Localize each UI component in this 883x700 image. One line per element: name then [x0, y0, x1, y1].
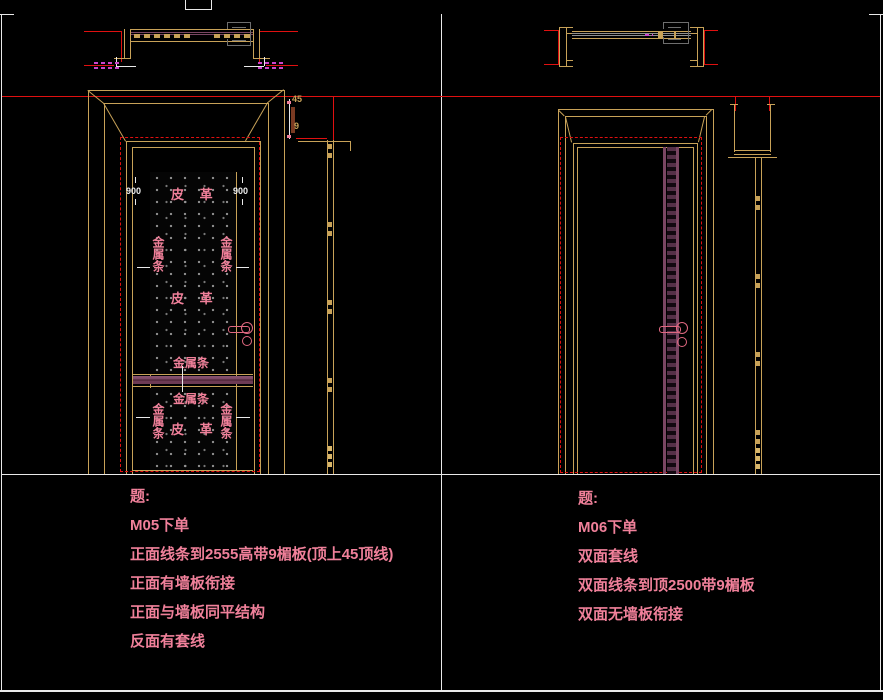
metal-strip-label: 金属条: [219, 403, 233, 439]
floor-line: [2, 474, 880, 475]
section-hatch: [328, 446, 332, 451]
cad-line: [350, 141, 351, 151]
lock-detail: [227, 45, 250, 46]
lock-detail: [250, 22, 251, 46]
jamb-line: [690, 60, 697, 61]
metal-strip-label: 金属条: [173, 354, 209, 371]
leather-label: 皮 革: [171, 419, 219, 438]
metal-strip-label: 金属条: [173, 390, 209, 407]
cad-line: [761, 157, 762, 474]
lock-detail: [663, 22, 664, 29]
border-top-tick-right: [869, 14, 883, 15]
section-symbol: [211, 0, 212, 9]
cad-line: [333, 140, 334, 474]
lock-detail: [663, 22, 688, 23]
wall-line: [333, 96, 334, 140]
leader-line: [182, 366, 183, 392]
leather-label: 皮 革: [171, 288, 219, 307]
cad-line: [730, 104, 738, 105]
cad-line: [734, 104, 735, 152]
note-line: 反面有套线: [130, 627, 393, 656]
cad-line: [767, 104, 775, 105]
section-hatch: [328, 144, 332, 444]
lock-detail: [688, 22, 689, 44]
leader-line: [136, 417, 150, 418]
trim-line: [289, 99, 290, 139]
section-symbol: [185, 0, 186, 9]
cad-line: [734, 150, 771, 151]
section-hatch: [756, 448, 760, 453]
mitre-line: [245, 102, 268, 141]
frame-line: [706, 116, 707, 474]
mitre-line: [87, 90, 104, 104]
mitre-line: [103, 103, 126, 142]
section-hatch: [328, 462, 332, 467]
hatch-magenta: [258, 62, 286, 64]
jamb-line: [703, 27, 704, 67]
lock-detail: [232, 27, 246, 28]
wall-line: [259, 31, 298, 32]
section-hatch: [328, 454, 332, 459]
mitre-line: [706, 109, 712, 115]
note-line: 正面线条到2555高带9楣板(顶上45顶线): [130, 540, 393, 569]
jamb-line: [690, 33, 697, 34]
cad-line: [130, 29, 253, 30]
dimension-900: 900: [126, 186, 141, 196]
border-top-tick-left: [0, 14, 14, 15]
wall-line: [704, 30, 705, 64]
left-notes-block[interactable]: 题: M05下单 正面线条到2555高带9楣板(顶上45顶线) 正面有墙板衔接 …: [130, 482, 393, 656]
lock-detail: [227, 22, 228, 29]
wall-line: [296, 138, 327, 139]
cad-line: [728, 157, 777, 158]
leather-label: 皮 革: [171, 184, 219, 203]
lock-detail: [663, 43, 688, 44]
right-notes-block[interactable]: 题: M06下单 双面套线 双面线条到顶2500带9楣板 双面无墙板衔接: [578, 484, 755, 629]
jamb-line: [559, 27, 560, 67]
frame-line: [104, 103, 268, 104]
leaf-line: [133, 470, 253, 471]
door-handle-rose: [676, 322, 688, 334]
section-hatch: [756, 464, 760, 469]
frame-line: [104, 103, 105, 474]
lock-detail: [227, 39, 228, 46]
dimension-tick: [242, 199, 243, 205]
border-left: [1, 14, 2, 691]
metal-strip-label: 金属条: [219, 236, 233, 272]
lock-detail: [668, 27, 681, 28]
section-symbol: [185, 9, 212, 10]
metal-rail-band: [133, 376, 253, 384]
cad-line: [734, 154, 771, 155]
dimension-900: 900: [233, 186, 248, 196]
note-line: M05下单: [130, 511, 393, 540]
jamb-line: [130, 29, 131, 58]
door-edge-strip-hatch: [667, 147, 676, 474]
wall-line: [544, 30, 559, 31]
casing-dashed-outline: [560, 137, 702, 473]
dimension-45: 45: [292, 94, 302, 104]
wall-line: [84, 65, 114, 66]
lock-detail: [232, 40, 246, 41]
leaf-line: [133, 374, 253, 375]
leader-line: [236, 267, 249, 268]
wall-line: [84, 31, 122, 32]
frame-line: [558, 109, 559, 474]
dimension-tick: [135, 177, 136, 183]
cad-line: [770, 104, 771, 152]
frame-line: [565, 116, 706, 117]
dimension-tick: [242, 177, 243, 183]
mitre-line: [558, 110, 564, 116]
cad-drawing-canvas: 皮 革 皮 革 皮 革 金属条 金属条 金属条 金属条 金属条 金属条 900 …: [0, 0, 883, 700]
wall-line: [703, 30, 718, 31]
cad-line: [130, 41, 253, 42]
note-line: 双面线条到顶2500带9楣板: [578, 571, 755, 600]
frame-line: [268, 103, 269, 474]
jamb-line: [566, 60, 573, 61]
metal-strip-label: 金属条: [151, 403, 165, 439]
cad-line: [298, 141, 350, 142]
note-line: 题:: [578, 484, 755, 513]
jamb-line: [253, 58, 270, 59]
section-hatch: [756, 196, 760, 444]
jamb-line: [690, 27, 704, 28]
frame-line: [88, 90, 285, 91]
lock-detail: [674, 31, 676, 38]
door-handle-rose: [241, 322, 253, 334]
metal-strip-label: 金属条: [151, 236, 165, 272]
hatch-magenta: [94, 67, 122, 69]
dimension-9: 9: [294, 121, 299, 131]
frame-line: [260, 141, 261, 474]
lock-detail: [668, 39, 681, 40]
jamb-line: [124, 29, 125, 58]
frame-line: [88, 90, 89, 474]
wood-hatch: [214, 34, 252, 38]
jamb-line: [253, 29, 254, 58]
ceiling-line: [2, 96, 880, 97]
wood-hatch: [134, 34, 192, 38]
tick: [287, 101, 291, 104]
cad-line: [130, 32, 253, 33]
tick: [287, 135, 291, 138]
lock-detail: [663, 37, 664, 44]
leader-line: [137, 267, 150, 268]
wall-line: [544, 64, 559, 65]
door-keyhole: [677, 337, 687, 347]
jamb-line: [559, 66, 573, 67]
note-line: 正面与墙板同平结构: [130, 598, 393, 627]
door-edge-strip: [663, 147, 666, 474]
section-hatch: [756, 456, 760, 461]
lock-detail: [227, 22, 250, 23]
sheet-divider: [441, 14, 442, 691]
jamb-line: [259, 29, 260, 58]
hatch-magenta: [94, 62, 122, 64]
jamb-line: [697, 27, 698, 67]
leader-line: [236, 417, 250, 418]
wall-line: [266, 65, 298, 66]
note-line: 正面有墙板衔接: [130, 569, 393, 598]
note-line: M06下单: [578, 513, 755, 542]
frame-line: [558, 109, 713, 110]
dimension-tick: [135, 199, 136, 205]
border-right: [880, 14, 881, 691]
frame-line: [713, 109, 714, 474]
hatch-magenta: [258, 67, 286, 69]
door-keyhole: [242, 336, 252, 346]
note-line: 双面无墙板衔接: [578, 600, 755, 629]
hatch-magenta: [645, 34, 653, 36]
jamb-line: [690, 66, 704, 67]
note-line: 双面套线: [578, 542, 755, 571]
frame-line: [284, 90, 285, 474]
jamb-line: [559, 27, 573, 28]
door-edge-strip: [676, 147, 679, 474]
leaf-line: [133, 386, 253, 387]
wall-line: [703, 64, 718, 65]
leaf-line: [236, 172, 237, 470]
note-line: 题:: [130, 482, 393, 511]
